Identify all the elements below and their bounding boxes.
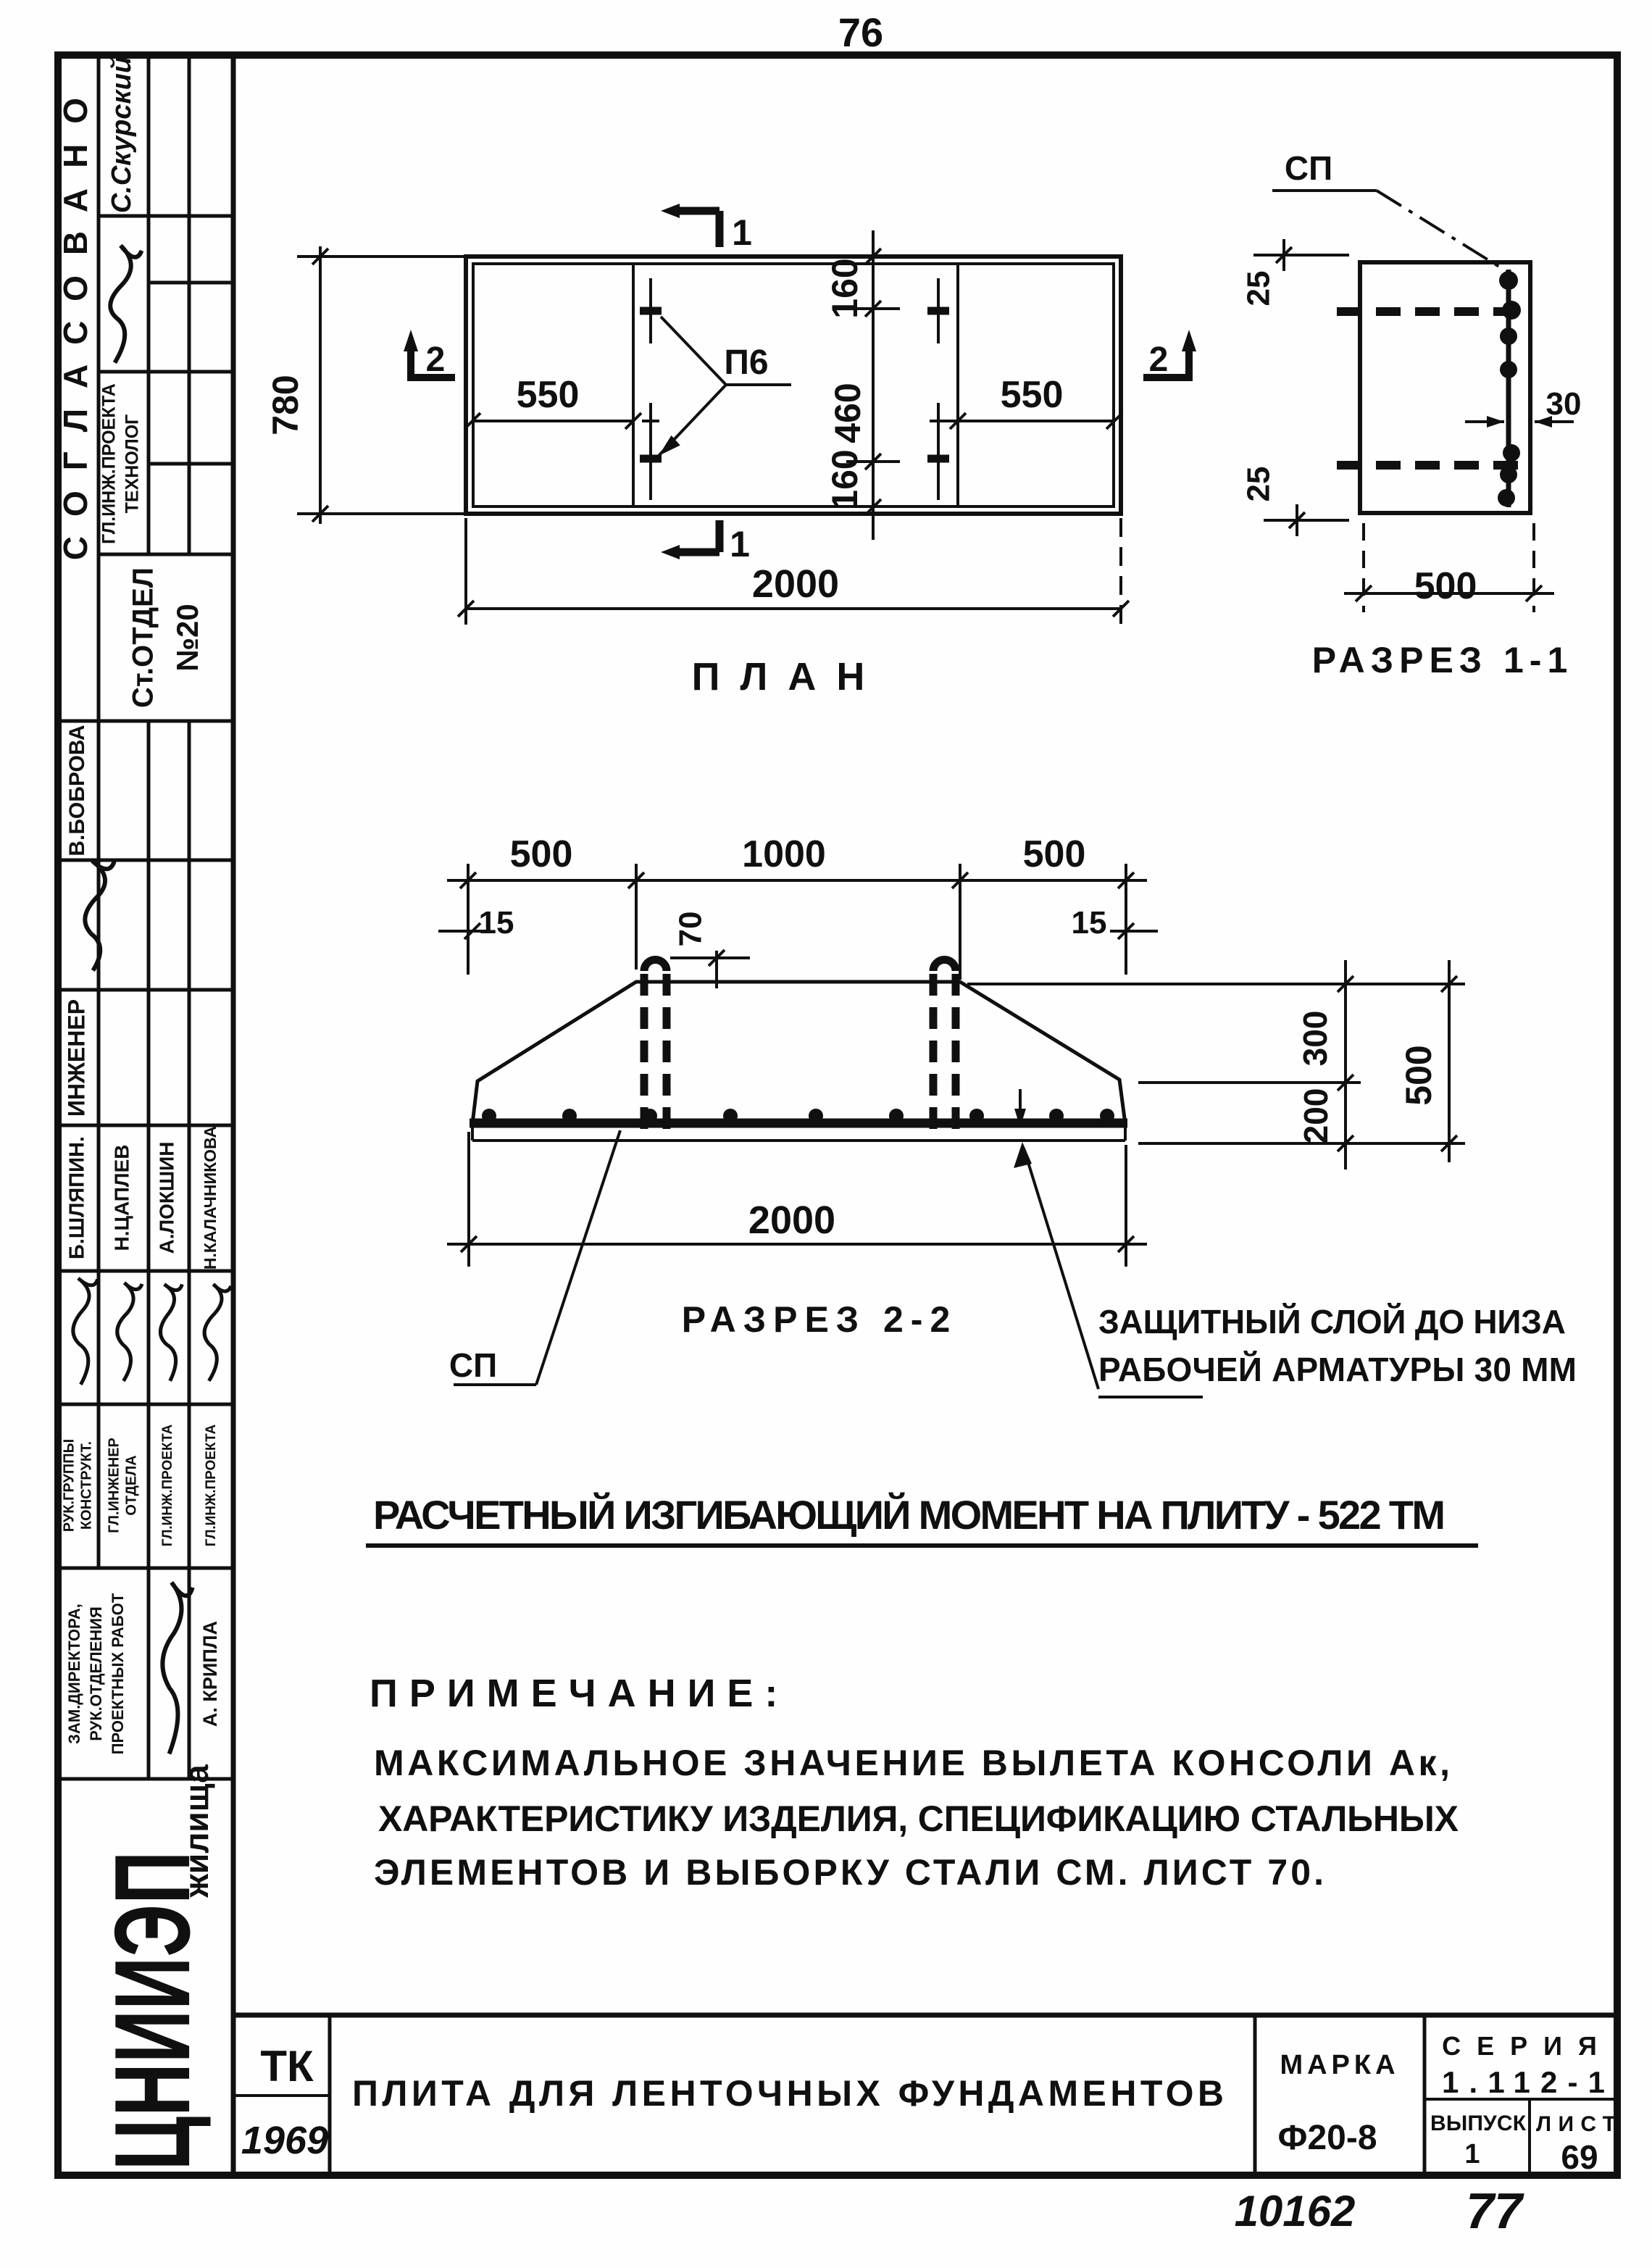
svg-text:ПЛАН: ПЛАН [692, 655, 885, 699]
svg-text:780: 780 [265, 375, 306, 435]
svg-text:ВЫПУСК: ВЫПУСК [1430, 2111, 1527, 2135]
svg-text:Ст.ОТДЕЛ: Ст.ОТДЕЛ [128, 567, 159, 708]
svg-text:1: 1 [730, 524, 750, 564]
svg-text:СЕРИЯ: СЕРИЯ [1442, 2031, 1613, 2061]
svg-text:ПРОЕКТНЫХ РАБОТ: ПРОЕКТНЫХ РАБОТ [109, 1593, 127, 1754]
svg-text:15: 15 [1072, 905, 1107, 941]
svg-text:ЦНИИЭП: ЦНИИЭП [92, 1851, 212, 2171]
svg-text:ПЛИТА ДЛЯ ЛЕНТОЧНЫХ ФУНДАМЕНТО: ПЛИТА ДЛЯ ЛЕНТОЧНЫХ ФУНДАМЕНТОВ [352, 2073, 1224, 2114]
svg-text:Н.ЦАПЛЕВ: Н.ЦАПЛЕВ [110, 1145, 133, 1251]
svg-text:РУК.ОТДЕЛЕНИЯ: РУК.ОТДЕЛЕНИЯ [87, 1606, 105, 1741]
svg-text:МАРКА: МАРКА [1280, 2050, 1399, 2080]
svg-text:ГЛ.ИНЖЕНЕР: ГЛ.ИНЖЕНЕР [106, 1438, 122, 1533]
svg-text:1: 1 [732, 212, 752, 253]
svg-text:500: 500 [1414, 565, 1477, 607]
svg-text:СП: СП [449, 1346, 497, 1384]
svg-text:ИНЖЕНЕР: ИНЖЕНЕР [63, 999, 89, 1117]
svg-text:Н.КАЛАЧНИКОВА: Н.КАЛАЧНИКОВА [201, 1126, 220, 1270]
svg-text:№20: №20 [170, 604, 204, 672]
svg-text:РАСЧЕТНЫЙ ИЗГИБАЮЩИЙ МОМЕНТ НА: РАСЧЕТНЫЙ ИЗГИБАЮЩИЙ МОМЕНТ НА ПЛИТУ - 5… [373, 1492, 1445, 1538]
svg-text:МАКСИМАЛЬНОЕ ЗНАЧЕНИЕ ВЫЛЕТА: МАКСИМАЛЬНОЕ ЗНАЧЕНИЕ ВЫЛЕТА КОНСОЛИ Ак, [374, 1743, 1450, 1783]
svg-text:С.Скурский: С.Скурский [107, 57, 137, 213]
svg-text:ЭЛЕМЕНТОВ И ВЫБОРКУ СТАЛИ СМ.: ЭЛЕМЕНТОВ И ВЫБОРКУ СТАЛИ СМ. ЛИСТ 70. [374, 1852, 1324, 1893]
svg-text:Б.ШЛЯПИН.: Б.ШЛЯПИН. [66, 1136, 89, 1259]
svg-text:ЗАМ.ДИРЕКТОРА,: ЗАМ.ДИРЕКТОРА, [65, 1604, 83, 1744]
svg-text:ГЛ.ИНЖ.ПРОЕКТА: ГЛ.ИНЖ.ПРОЕКТА [204, 1424, 219, 1546]
svg-text:ГЛ.ИНЖ.ПРОЕКТА: ГЛ.ИНЖ.ПРОЕКТА [99, 383, 120, 544]
svg-text:76: 76 [838, 9, 883, 55]
svg-text:2: 2 [426, 341, 446, 379]
svg-text:ОТДЕЛА: ОТДЕЛА [123, 1455, 139, 1515]
svg-text:КОНСТРУКТ.: КОНСТРУКТ. [78, 1441, 94, 1530]
svg-text:жилища: жилища [178, 1764, 215, 1898]
svg-text:СП: СП [1285, 149, 1332, 187]
svg-text:25: 25 [1241, 271, 1277, 307]
svg-text:ТК: ТК [260, 2042, 314, 2090]
svg-text:1000: 1000 [742, 833, 826, 875]
svg-text:ЗАЩИТНЫЙ СЛОЙ ДО НИЗА: ЗАЩИТНЫЙ СЛОЙ ДО НИЗА [1098, 1303, 1566, 1341]
svg-text:200: 200 [1297, 1088, 1335, 1144]
svg-text:550: 550 [1001, 374, 1064, 416]
svg-text:69: 69 [1561, 2138, 1598, 2176]
svg-text:500: 500 [510, 833, 573, 875]
svg-text:В.БОБРОВА: В.БОБРОВА [65, 725, 89, 856]
svg-text:460: 460 [827, 383, 868, 443]
svg-text:РАБОЧЕЙ АРМАТУРЫ 30 ММ: РАБОЧЕЙ АРМАТУРЫ 30 ММ [1098, 1351, 1577, 1388]
svg-text:160: 160 [825, 449, 865, 509]
svg-text:160: 160 [825, 258, 865, 318]
svg-text:РАЗРЕЗ 2-2: РАЗРЕЗ 2-2 [682, 1299, 958, 1340]
svg-text:10162: 10162 [1235, 2187, 1356, 2235]
svg-text:70: 70 [673, 912, 709, 947]
svg-text:25: 25 [1241, 467, 1277, 502]
svg-text:А.ЛОКШИН: А.ЛОКШИН [155, 1142, 178, 1254]
svg-text:2000: 2000 [748, 1198, 835, 1242]
svg-text:ГЛ.ИНЖ.ПРОЕКТА: ГЛ.ИНЖ.ПРОЕКТА [160, 1424, 175, 1546]
svg-text:П6: П6 [724, 343, 768, 382]
svg-text:РАЗРЕЗ 1-1: РАЗРЕЗ 1-1 [1312, 640, 1574, 680]
svg-text:1: 1 [1464, 2139, 1480, 2169]
svg-text:РУК.ГРУППЫ: РУК.ГРУППЫ [61, 1439, 77, 1532]
svg-text:77: 77 [1466, 2182, 1524, 2239]
svg-text:ТЕХНОЛОГ: ТЕХНОЛОГ [122, 414, 143, 514]
svg-text:ХАРАКТЕРИСТИКУ ИЗДЕЛИЯ, СПЕЦИФ: ХАРАКТЕРИСТИКУ ИЗДЕЛИЯ, СПЕЦИФИКАЦИЮ СТА… [378, 1798, 1459, 1839]
svg-text:2000: 2000 [752, 562, 839, 606]
svg-text:1969: 1969 [241, 2119, 328, 2162]
svg-text:А. КРИПЛА: А. КРИПЛА [199, 1621, 221, 1727]
svg-text:15: 15 [479, 905, 514, 941]
svg-text:550: 550 [517, 374, 580, 416]
svg-text:300: 300 [1296, 1011, 1334, 1067]
svg-text:500: 500 [1023, 833, 1086, 875]
svg-text:500: 500 [1398, 1045, 1439, 1105]
svg-text:СОГЛАСОВАНО: СОГЛАСОВАНО [57, 78, 94, 560]
svg-text:ПРИМЕЧАНИЕ:: ПРИМЕЧАНИЕ: [370, 1672, 789, 1715]
svg-text:Ф20-8: Ф20-8 [1277, 2119, 1377, 2157]
svg-text:2: 2 [1149, 341, 1169, 379]
